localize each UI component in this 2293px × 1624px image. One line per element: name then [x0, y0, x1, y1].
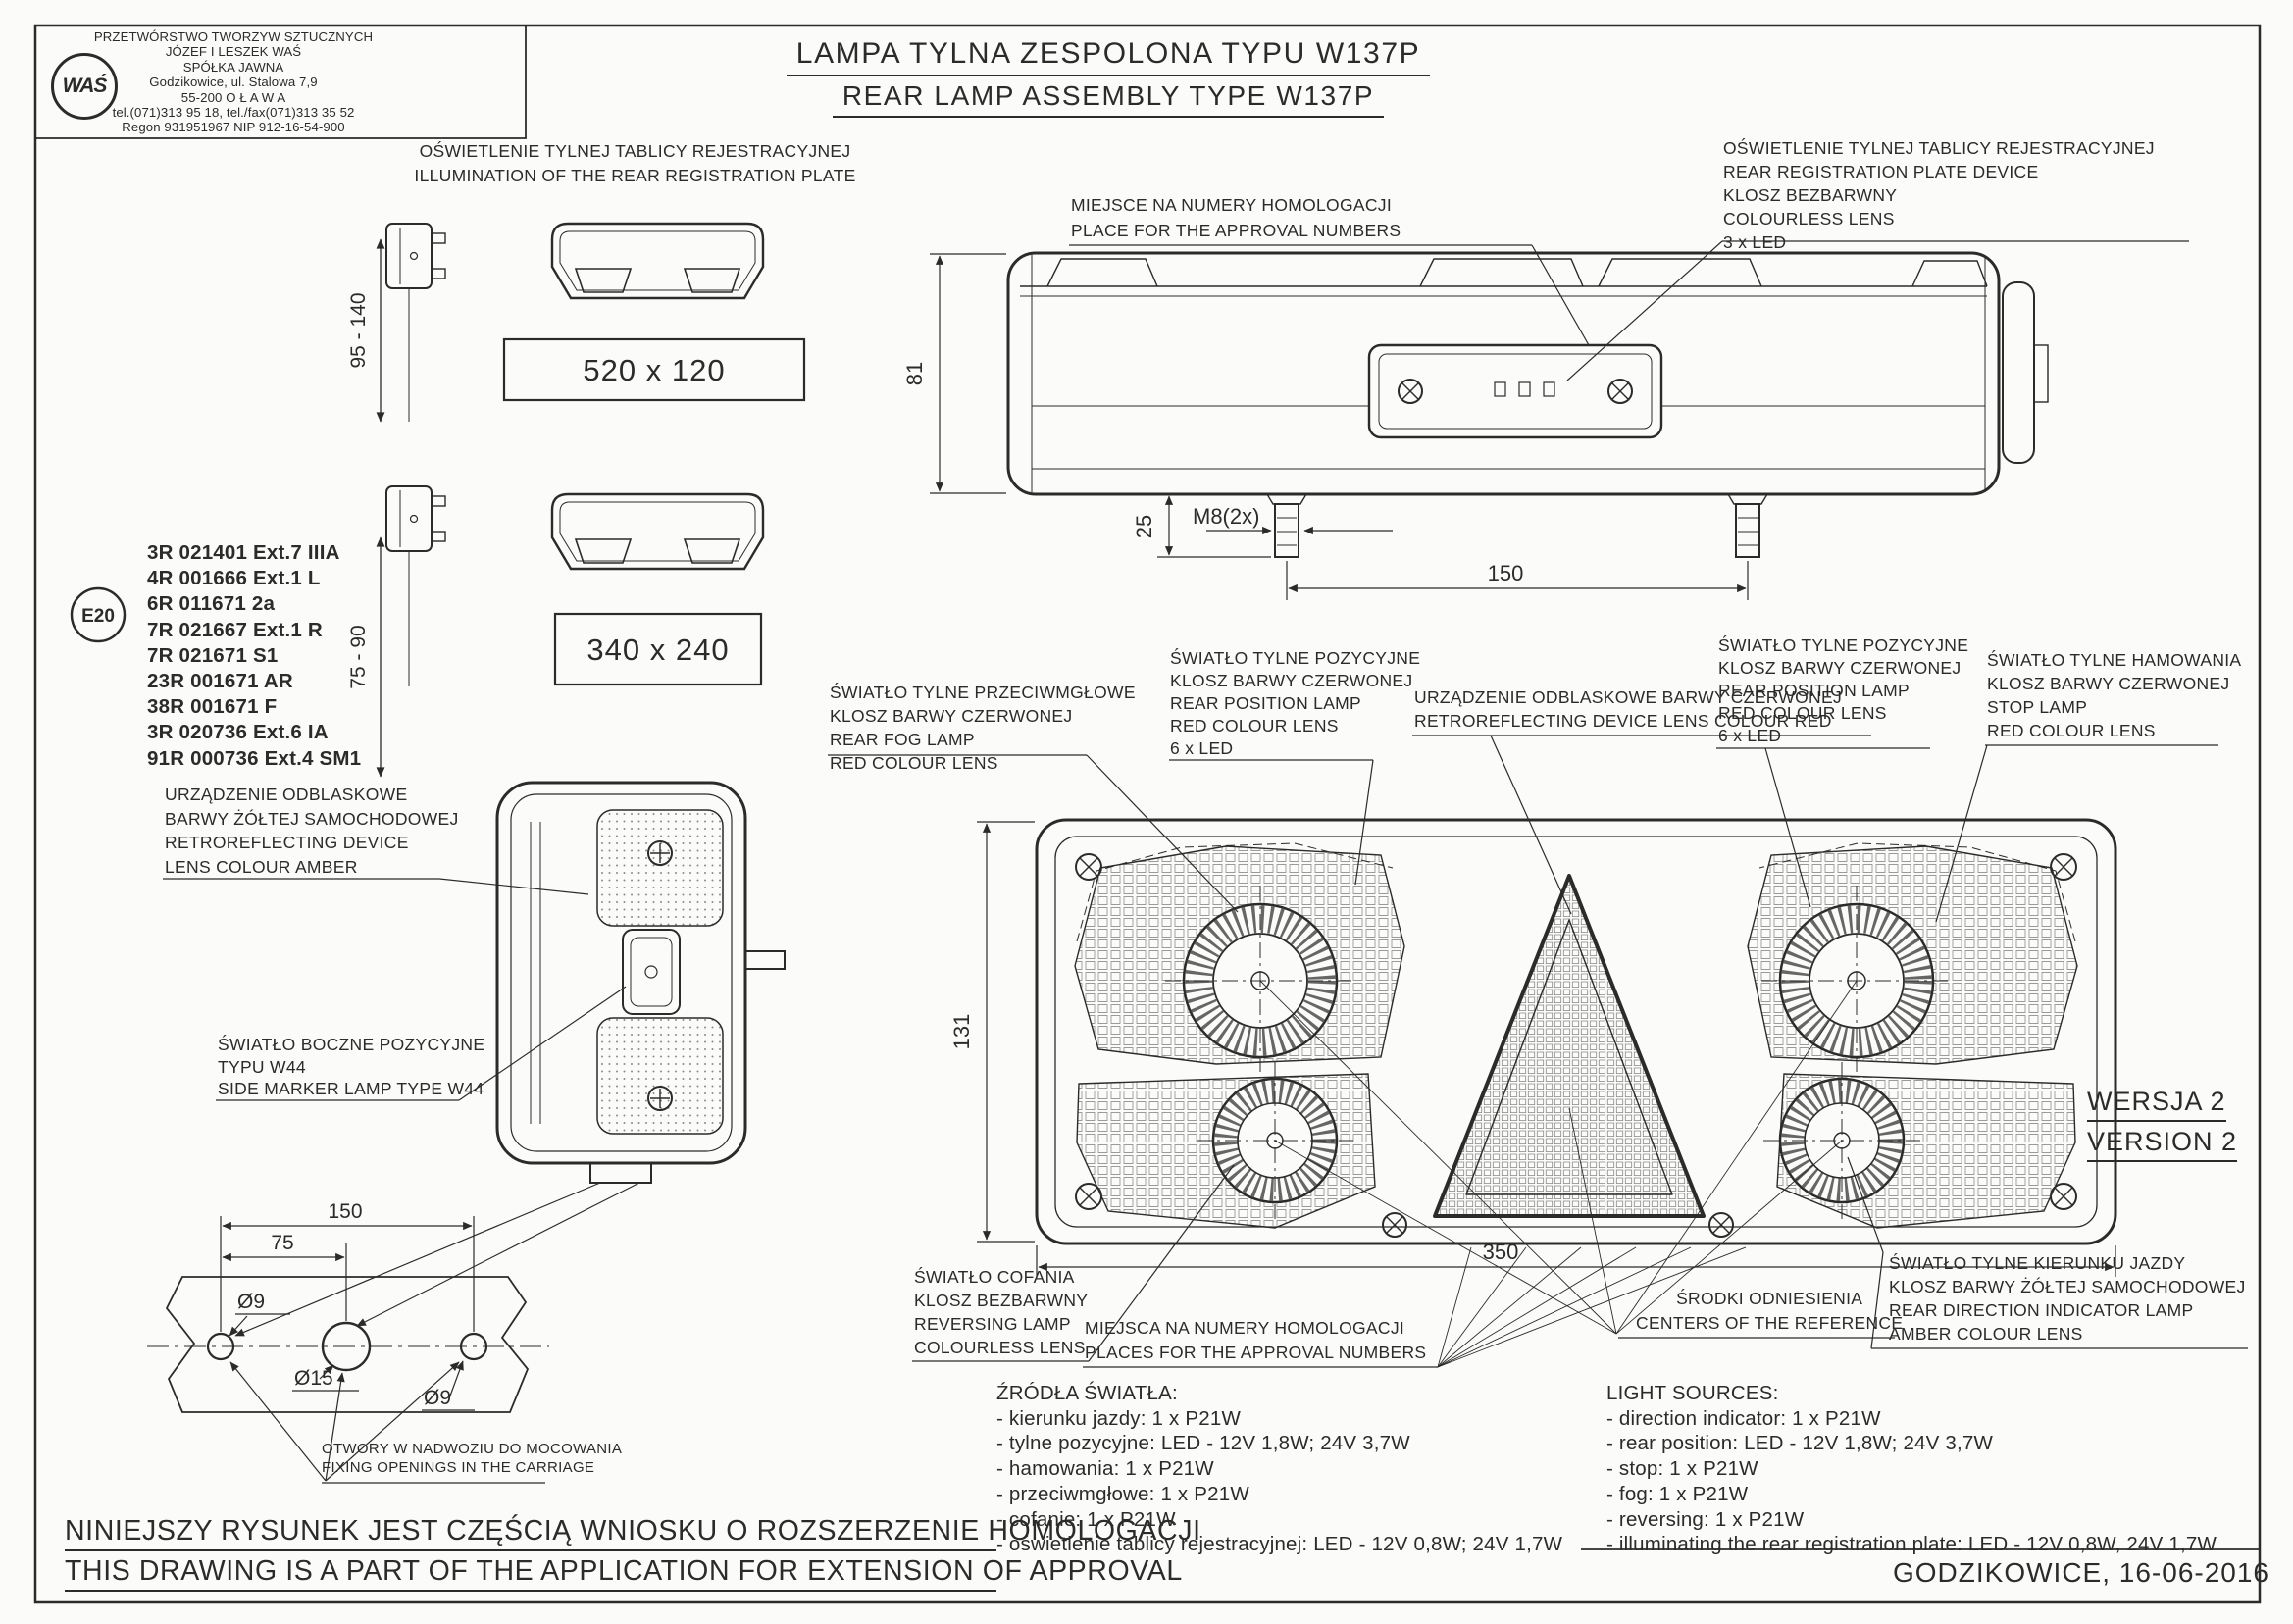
approval-number: 3R 020736 Ext.6 IA	[147, 720, 361, 745]
label-direction-indicator: ŚWIATŁO TYLNE KIERUNKU JAZDY KLOSZ BARWY…	[1889, 1251, 2246, 1345]
label-reversing-lamp: ŚWIATŁO COFANIA KLOSZ BEZBARWNY REVERSIN…	[914, 1265, 1088, 1359]
dim-stud-thread: M8(2x)	[1193, 504, 1259, 529]
title-pl: LAMPA TYLNA ZESPOLONA TYPU W137P	[787, 37, 1430, 76]
mounting-foot	[590, 1163, 651, 1183]
plate-illumination-heading: OŚWIETLENIE TYLNEJ TABLICY REJESTRACYJNE…	[382, 139, 888, 188]
approval-number: 23R 001671 AR	[147, 669, 361, 694]
front-view-drawing	[1037, 820, 2115, 1243]
company-line: PRZETWÓRSTWO TWORZYW SZTUCZNYCH	[86, 29, 381, 44]
plate-size-box-large: 520 x 120	[504, 339, 804, 400]
version-note: WERSJA 2 VERSION 2	[2087, 1087, 2237, 1167]
company-line: tel.(071)313 95 18, tel./fax(071)313 35 …	[86, 105, 381, 120]
company-line: SPÓŁKA JAWNA	[86, 60, 381, 75]
drawing-title: LAMPA TYLNA ZESPOLONA TYPU W137P REAR LA…	[785, 37, 1432, 122]
company-line: Regon 931951967 NIP 912-16-54-900	[86, 120, 381, 134]
plate-size-large: 520 x 120	[583, 353, 725, 387]
side-marker-lamp	[623, 930, 680, 1014]
company-line: JÓZEF I LESZEK WAŚ	[86, 44, 381, 59]
approval-number: 7R 021667 Ext.1 R	[147, 618, 361, 643]
mounting-stud-right	[1728, 494, 1767, 557]
approval-number: 7R 021671 S1	[147, 643, 361, 669]
heading-line: ILLUMINATION OF THE REAR REGISTRATION PL…	[382, 164, 888, 188]
rear-view-drawing	[1008, 253, 2048, 557]
label-fog-lamp: ŚWIATŁO TYLNE PRZECIWMGŁOWE KLOSZ BARWY …	[830, 681, 1136, 775]
plate-size-box-small: 340 x 240	[555, 614, 761, 685]
dim-rear-height: 81	[902, 362, 927, 385]
dim-stud-spacing: 150	[1488, 561, 1524, 585]
label-amber-retroreflector: URZĄDZENIE ODBLASKOWE BARWY ŻÓŁTEJ SAMOC…	[165, 783, 459, 879]
dim-holes-half: 75	[271, 1232, 293, 1254]
mount-range-dim-large: 95 - 140	[347, 239, 381, 422]
fixing-holes-drawing: 150 75 Ø9 Ø15 Ø9	[147, 1200, 549, 1412]
svg-text:95 - 140: 95 - 140	[347, 292, 370, 368]
approval-number: 3R 021401 Ext.7 IIIA	[147, 540, 361, 566]
dim-front-width: 350	[1483, 1240, 1519, 1264]
company-info: PRZETWÓRSTWO TWORZYW SZTUCZNYCH JÓZEF I …	[86, 29, 381, 135]
heading-line: OŚWIETLENIE TYLNEJ TABLICY REJESTRACYJNE…	[382, 139, 888, 164]
drawing-sheet: E20	[0, 0, 2293, 1624]
dim-holes-span: 150	[328, 1200, 362, 1223]
approval-number: 91R 000736 Ext.4 SM1	[147, 746, 361, 772]
plate-lamp-front-view-2	[552, 494, 763, 569]
plate-lamp-side-view-2	[386, 486, 445, 686]
issue-place-date: GODZIKOWICE, 16-06-2016	[1893, 1557, 2254, 1589]
plate-lamp-front-view-1	[552, 224, 763, 298]
label-stop-lamp: ŚWIATŁO TYLNE HAMOWANIA KLOSZ BARWY CZER…	[1987, 648, 2241, 742]
registration-plate-device	[1369, 345, 1661, 437]
label-reg-plate-device: OŚWIETLENIE TYLNEJ TABLICY REJESTRACYJNE…	[1723, 136, 2155, 254]
label-reference-centers: ŚRODKI ODNIESIENIA CENTERS OF THE REFERE…	[1636, 1287, 1903, 1336]
label-position-lamp-left: ŚWIATŁO TYLNE POZYCYJNE KLOSZ BARWY CZER…	[1170, 647, 1420, 760]
side-view-drawing	[497, 783, 785, 1183]
approval-number: 6R 011671 2a	[147, 591, 361, 617]
plate-lamp-side-view-1	[386, 224, 445, 422]
e-mark: E20	[72, 588, 125, 641]
e-mark-label: E20	[81, 606, 115, 627]
label-place-for-approval-top: MIEJSCE NA NUMERY HOMOLOGACJI PLACE FOR …	[1071, 193, 1401, 243]
plate-size-small: 340 x 240	[586, 633, 729, 667]
light-sources-en: LIGHT SOURCES: - direction indicator: 1 …	[1606, 1381, 2217, 1557]
mounting-stud-left	[1267, 494, 1306, 557]
approval-numbers-list: 3R 021401 Ext.7 IIIA 4R 001666 Ext.1 L 6…	[147, 540, 361, 772]
company-line: Godzikowice, ul. Stalowa 7,9	[86, 75, 381, 89]
label-position-lamp-right: ŚWIATŁO TYLNE POZYCYJNE KLOSZ BARWY CZER…	[1718, 634, 1968, 747]
triangle-retroreflector	[1435, 876, 1704, 1216]
dim-stud-offset: 25	[1132, 515, 1156, 538]
company-line: 55-200 O Ł A W A	[86, 90, 381, 105]
connector-stub	[745, 951, 785, 969]
label-fixing-openings: OTWORY W NADWOZIU DO MOCOWANIA FIXING OP…	[322, 1440, 553, 1477]
label-places-for-approval-bottom: MIEJSCA NA NUMERY HOMOLOGACJI PLACES FOR…	[1085, 1316, 1426, 1365]
approval-number: 38R 001671 F	[147, 694, 361, 720]
approval-number: 4R 001666 Ext.1 L	[147, 566, 361, 591]
dim-front-height: 131	[949, 1014, 974, 1050]
label-side-marker: ŚWIATŁO BOCZNE POZYCYJNE TYPU W44 SIDE M…	[218, 1034, 484, 1100]
footer-note: NINIEJSZY RYSUNEK JEST CZĘŚCIĄ WNIOSKU O…	[65, 1515, 996, 1596]
title-en: REAR LAMP ASSEMBLY TYPE W137P	[833, 80, 1384, 118]
dim-hole-left: Ø9	[237, 1291, 265, 1313]
